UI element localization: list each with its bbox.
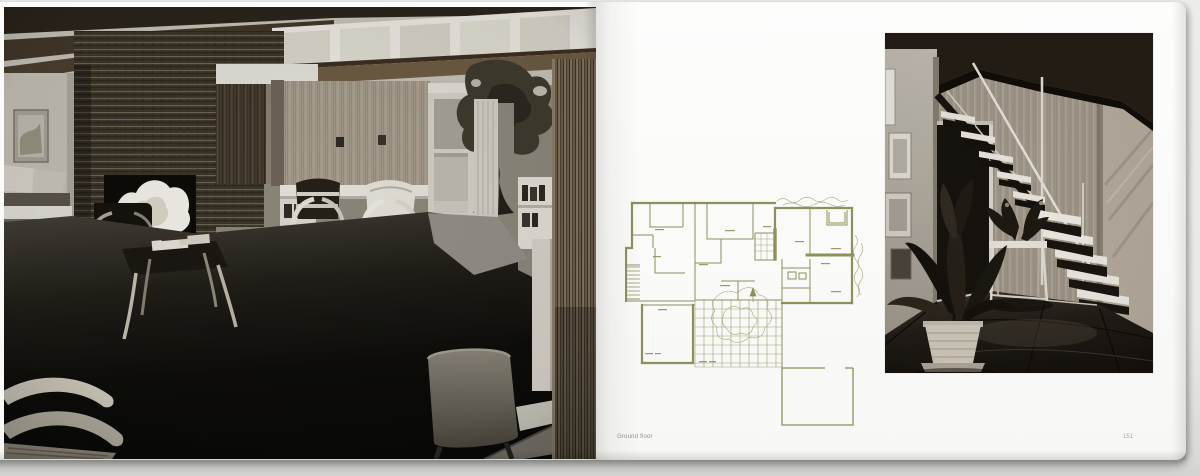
floor-plan-figure xyxy=(625,193,873,433)
page-number: 151 xyxy=(1123,433,1133,441)
book-spread: Ground floor xyxy=(0,2,1186,460)
interior-photo xyxy=(4,7,596,459)
left-page xyxy=(0,2,598,460)
plan-caption: Ground floor xyxy=(617,433,653,441)
right-page: Ground floor xyxy=(598,2,1186,460)
staircase-photo xyxy=(885,33,1153,373)
page-edge-shade xyxy=(1172,2,1186,460)
floor-plan-drawing xyxy=(625,193,873,433)
